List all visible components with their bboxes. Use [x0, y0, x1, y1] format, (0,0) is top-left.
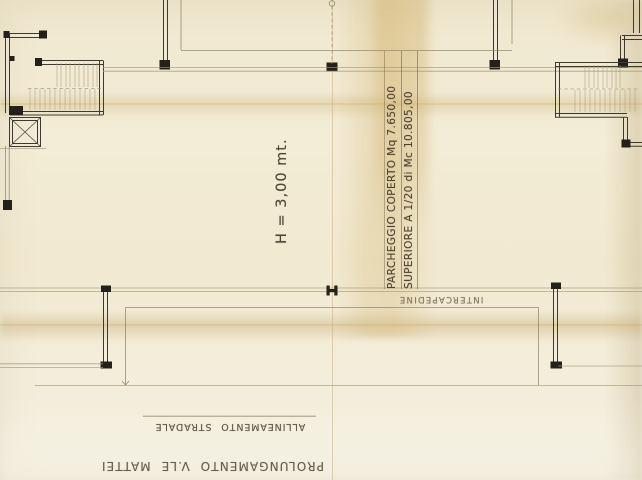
parking-annotation: PARCHEGGIO COPERTO Mq 7.650,00 SUPERIORE… — [384, 51, 418, 289]
pier — [39, 31, 47, 39]
stair-treads — [57, 63, 97, 87]
pier-cap — [551, 283, 561, 290]
stairwell-top-right — [555, 0, 642, 148]
lower-building-outline — [0, 283, 642, 386]
stair-treads — [575, 90, 635, 112]
stairwell-top-left — [0, 31, 104, 211]
fold-crease-lines — [0, 0, 642, 480]
extension-label: PROLUNGAMENTO V.LE MATTEI — [108, 453, 324, 473]
drawing-sheet: H = 3,00 mt. PARCHEGGIO COPERTO Mq 7.650… — [0, 0, 642, 480]
pier — [160, 60, 171, 70]
pier-cap — [551, 362, 563, 369]
pier — [4, 31, 10, 38]
shaft-cross — [10, 118, 40, 146]
pier — [3, 200, 12, 210]
stair-treads — [30, 89, 95, 110]
pier — [622, 140, 631, 148]
inner-wall-line — [181, 0, 512, 51]
parking-annotation-line2: SUPERIORE A 1/20 di Mc 10.805,00 — [402, 51, 419, 289]
upper-building-outline — [103, 0, 642, 72]
door-jamb — [10, 56, 15, 61]
parking-annotation-line1: PARCHEGGIO COPERTO Mq 7.650,00 — [384, 51, 402, 289]
pier — [490, 60, 501, 70]
pier-cap — [101, 286, 111, 293]
wall-junction — [9, 106, 23, 115]
pier — [35, 58, 42, 66]
stair-treads — [585, 65, 620, 88]
floor-plan-linework — [0, 0, 642, 480]
street-alignment-label: ALLINEAMENTO STRADALE — [142, 417, 318, 432]
cavity-label: INTERCAPEDINE — [396, 290, 486, 304]
height-annotation: H = 3,00 mt. — [274, 138, 302, 244]
